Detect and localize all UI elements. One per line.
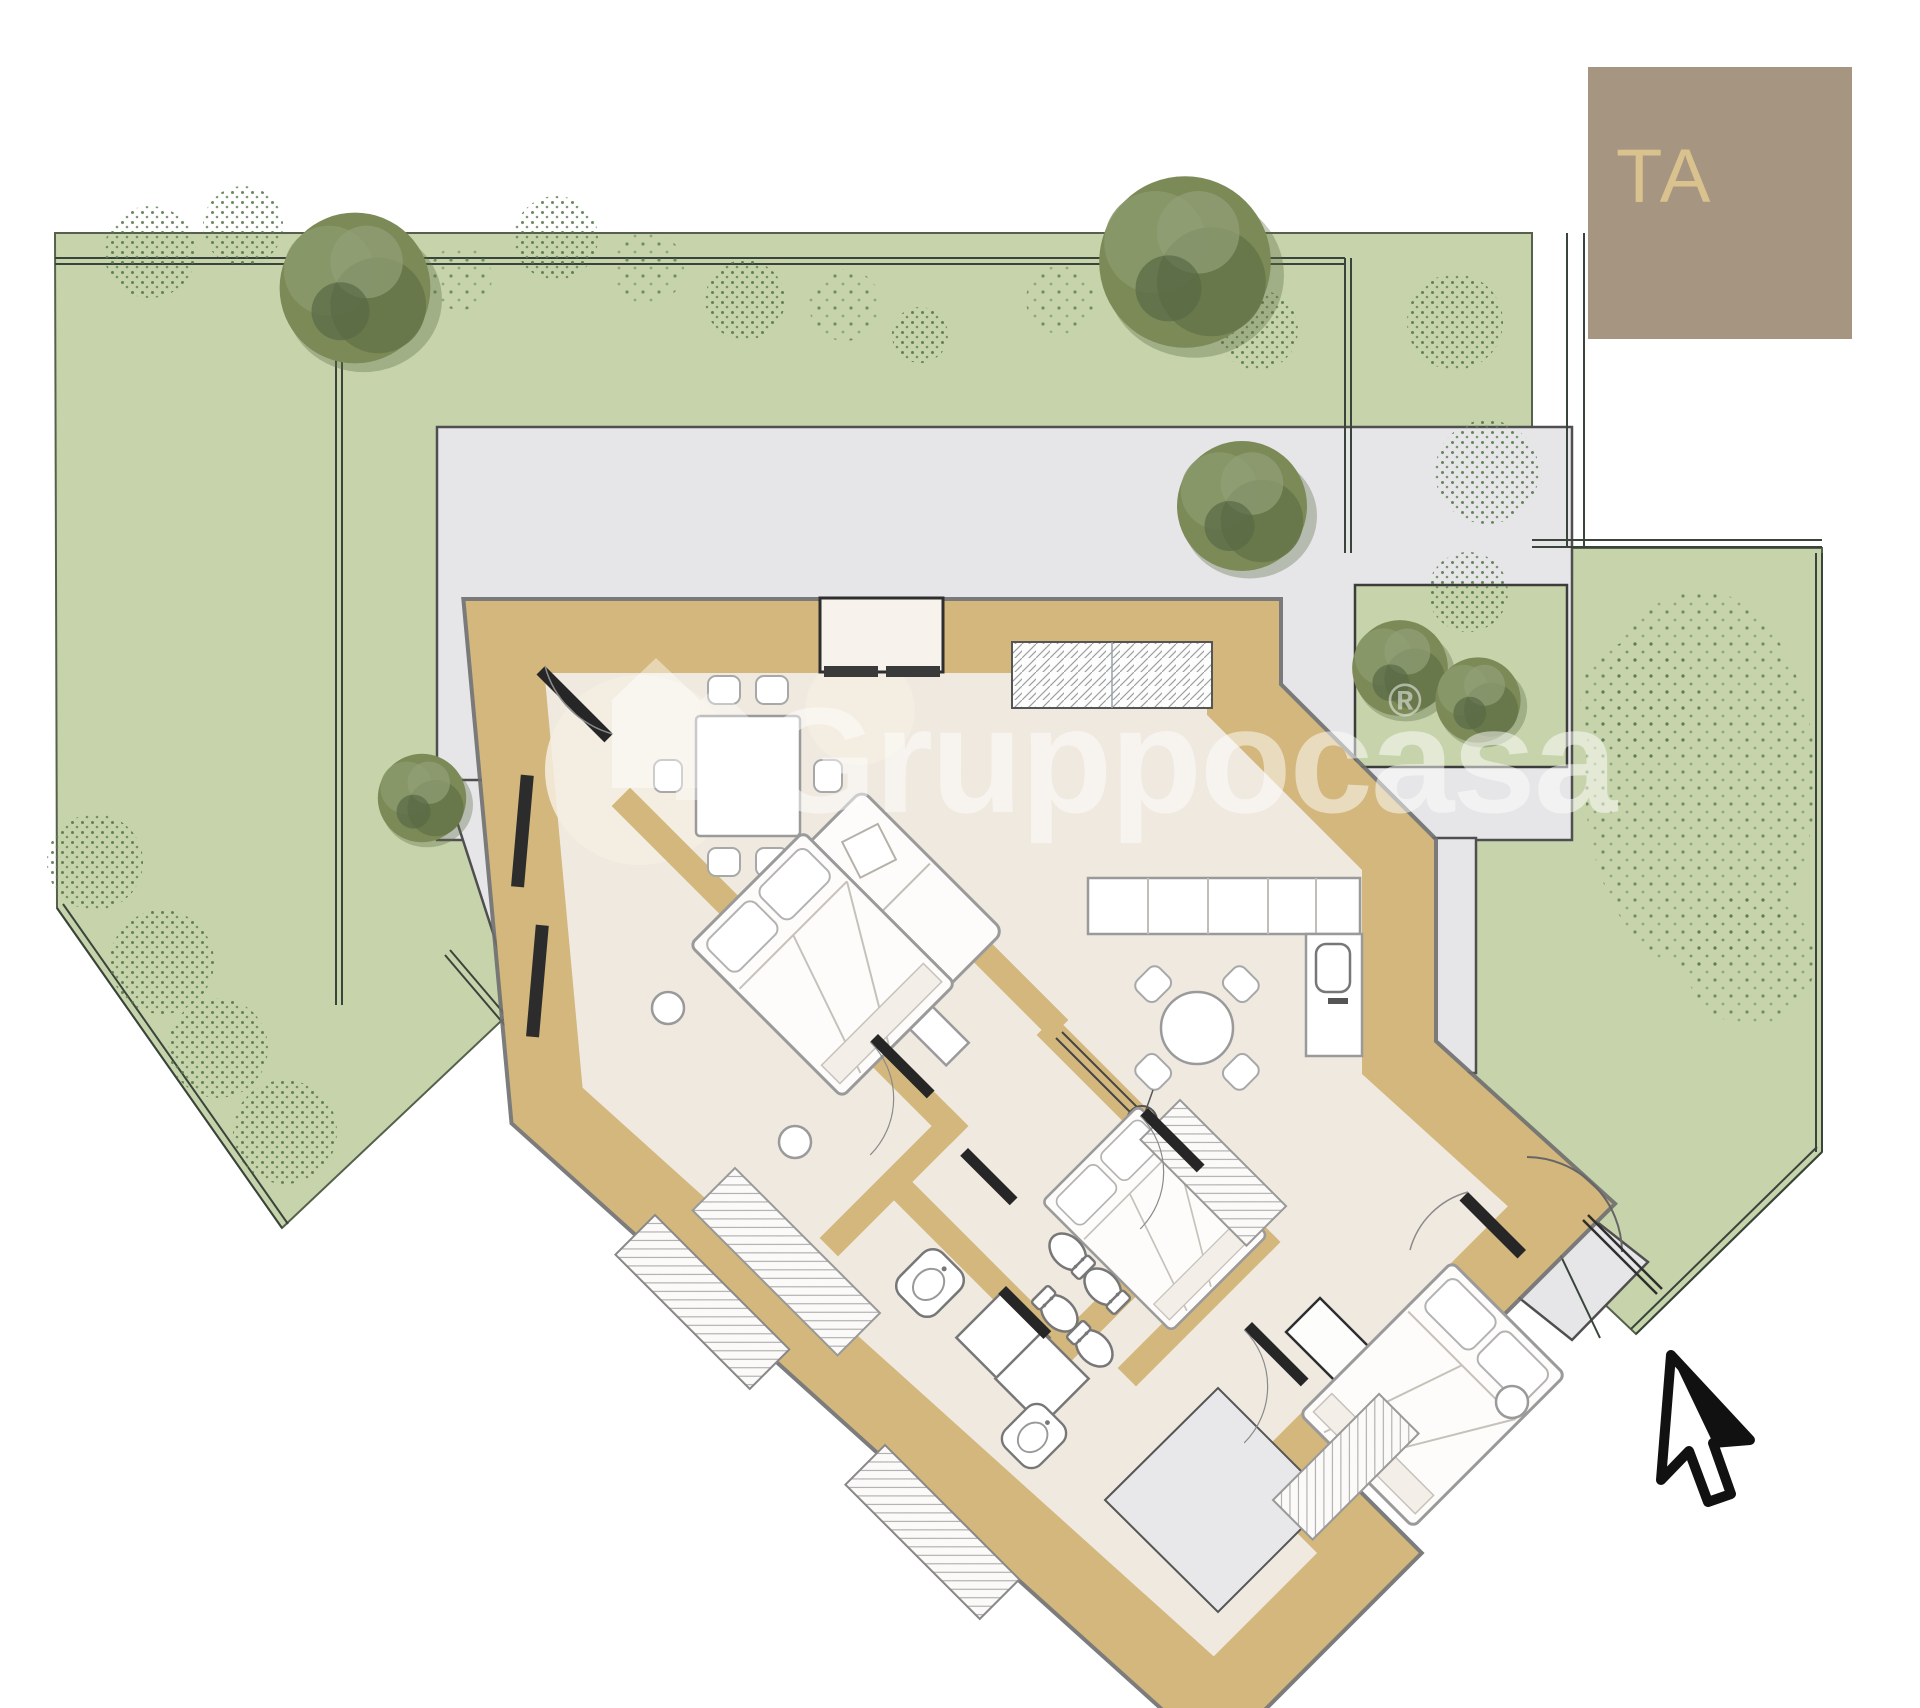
bush-icon xyxy=(1685,895,1815,1025)
bush-icon xyxy=(705,260,785,340)
title-block-label: TA xyxy=(1616,134,1713,219)
bush-icon xyxy=(47,814,143,910)
bush-icon xyxy=(203,186,283,266)
nightstand xyxy=(1496,1386,1528,1418)
floor-plan-page: N xyxy=(0,0,1920,1708)
bush-icon xyxy=(1428,552,1508,632)
watermark-brand: Gruppocasa xyxy=(760,676,1619,844)
window-bay xyxy=(820,598,943,672)
bush-icon xyxy=(892,307,948,363)
bush-icon xyxy=(1407,274,1503,370)
bush-icon xyxy=(809,269,881,341)
bush-icon xyxy=(110,910,214,1014)
bush-icon xyxy=(168,998,268,1098)
bush-icon xyxy=(1435,420,1539,524)
bush-icon xyxy=(612,232,684,304)
title-block: TA xyxy=(1588,67,1852,339)
bush-icon xyxy=(1026,266,1094,334)
bush-icon xyxy=(233,1080,337,1184)
watermark-registered-icon: ® xyxy=(1388,674,1422,726)
kitchen-counter-top xyxy=(1088,878,1360,934)
watermark: Gruppocasa ® xyxy=(612,658,1619,844)
nightstand xyxy=(779,1126,811,1158)
site-plan-drawing: N xyxy=(0,0,1920,1708)
bush-icon xyxy=(514,196,598,280)
kitchen-sink xyxy=(1316,944,1350,992)
nightstand xyxy=(652,992,684,1024)
bush-icon xyxy=(104,206,196,298)
north-arrow-icon xyxy=(1661,1355,1750,1502)
